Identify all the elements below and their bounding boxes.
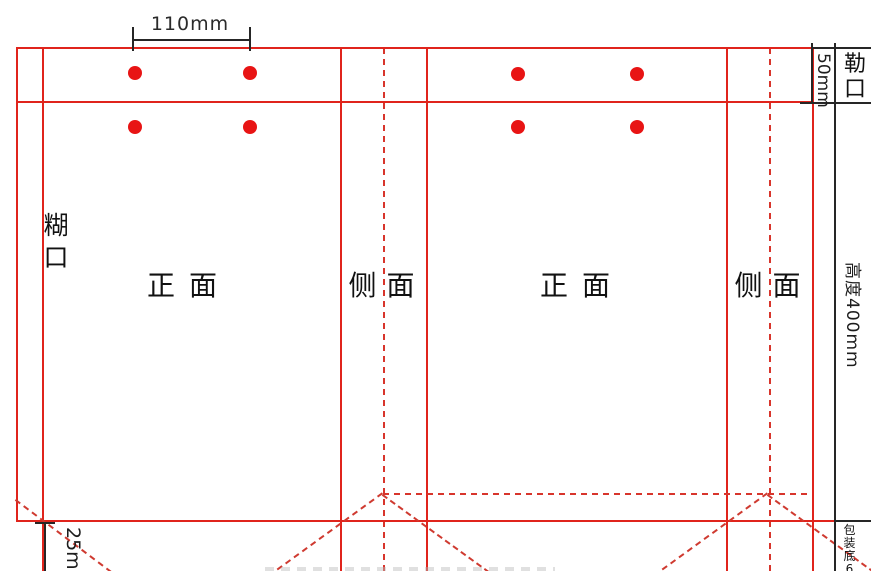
dim-label-50mm: 50mm [813, 53, 833, 108]
dim-label-height-400mm: 高度400mm [842, 262, 867, 369]
gusset2-left-diagonal-fold [662, 492, 768, 570]
cut-line-right-edge [812, 48, 814, 571]
bottom-gusset-dashed-line [383, 493, 810, 495]
dim-label-bottom-depth: 包装底65 [842, 524, 857, 571]
height-dim-top-tick [800, 102, 871, 104]
top-fold-crease-line [16, 101, 813, 103]
dim-label-110mm: 110mm [140, 13, 240, 35]
handle-hole-dot [243, 66, 257, 80]
handle-hole-dot [243, 120, 257, 134]
handle-hole-dot [511, 67, 525, 81]
height-dim-bottom-tick [835, 520, 871, 522]
side-panel-label-2: 侧面 [700, 264, 845, 296]
dim-line-110mm [133, 39, 250, 41]
front-panel-label-2: 正面 [497, 264, 667, 296]
cut-line-glue-flap-left [16, 48, 18, 522]
fold-line-front1-side1 [340, 48, 342, 571]
top-cut-line [16, 47, 813, 49]
handle-hole-dot [128, 66, 142, 80]
fold-line-glue-flap-right [42, 48, 44, 571]
glue-flap-label: 糊口 [42, 210, 70, 274]
dim-label-25mm: 25mm [62, 527, 84, 571]
bottom-fold-line [16, 520, 836, 522]
front-panel-label-1: 正面 [104, 264, 274, 296]
dim-tick-110mm-left [132, 27, 134, 51]
handle-hole-dot [128, 120, 142, 134]
dim-tick-110mm-right [249, 27, 251, 51]
handle-hole-dot [630, 67, 644, 81]
top-fold-box-top-line [811, 47, 871, 49]
handle-hole-dot [511, 120, 525, 134]
side-panel-label-1: 侧面 [314, 264, 459, 296]
gusset1-left-diagonal-fold [277, 492, 383, 570]
gusset1-right-diagonal-fold [382, 494, 490, 571]
handle-hole-dot [630, 120, 644, 134]
height-dim-line [834, 43, 836, 571]
dim-line-25mm [44, 522, 46, 571]
dieline-canvas: 110mm 25mm 糊口 正面 侧面 正面 侧面 勒口 50mm 高度400m… [0, 0, 871, 571]
top-fold-label: 勒口 [842, 52, 868, 102]
watermark-remnant [265, 567, 555, 571]
